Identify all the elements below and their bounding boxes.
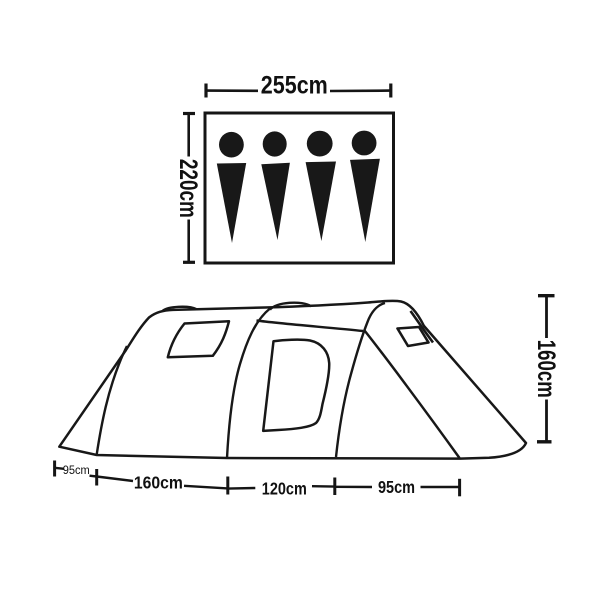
svg-text:120cm: 120cm [262, 479, 307, 499]
svg-text:160cm: 160cm [532, 340, 560, 398]
svg-text:160cm: 160cm [134, 472, 183, 492]
svg-text:220cm: 220cm [174, 159, 202, 218]
svg-text:255cm: 255cm [261, 71, 328, 99]
svg-text:95cm: 95cm [378, 477, 415, 497]
svg-text:95cm: 95cm [63, 463, 90, 477]
